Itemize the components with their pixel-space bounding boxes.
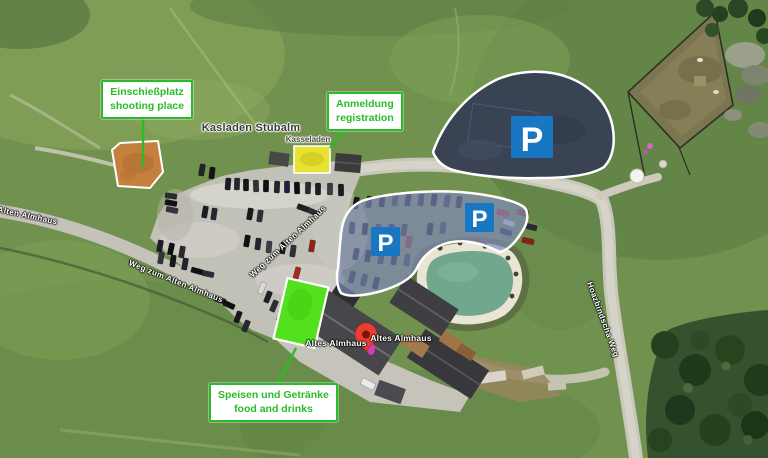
satellite-map: P P P Kasladen Stubalm Kasseladen [0, 0, 768, 458]
parking-icon-mid-right: P [465, 203, 494, 233]
car [327, 183, 333, 195]
annotation-shooting-place-de: Einschießplatz [110, 86, 184, 100]
annotation-registration-de: Anmeldung [336, 98, 394, 112]
annotation-shooting-place-en: shooting place [110, 100, 184, 114]
annotation-shooting-place: Einschießplatz shooting place [101, 80, 193, 119]
annotation-registration: Anmeldung registration [327, 92, 403, 131]
svg-text:P: P [377, 230, 393, 257]
svg-text:P: P [471, 206, 487, 233]
car [255, 238, 262, 251]
car [253, 180, 259, 192]
car [263, 180, 269, 192]
map-scene: P P P [0, 0, 768, 458]
svg-text:P: P [521, 121, 544, 159]
annotation-food-drinks: Speisen und Getränke food and drinks [209, 383, 338, 422]
parking-icon-large: P [511, 116, 553, 159]
annotation-food-drinks-en: food and drinks [218, 403, 329, 417]
car [225, 178, 232, 190]
car [234, 178, 240, 190]
forest [646, 310, 768, 458]
car [305, 182, 311, 194]
parking-icon-mid-left: P [371, 227, 400, 257]
car [338, 184, 344, 196]
car [284, 181, 290, 193]
annotation-registration-en: registration [336, 112, 394, 126]
car [243, 179, 249, 191]
car [274, 181, 280, 193]
car [266, 241, 273, 253]
registration-area [294, 146, 330, 173]
car [315, 183, 321, 195]
car [294, 182, 300, 194]
car [209, 167, 216, 180]
shooting-place-area [112, 141, 163, 188]
annotation-food-drinks-de: Speisen und Getränke [218, 389, 329, 403]
